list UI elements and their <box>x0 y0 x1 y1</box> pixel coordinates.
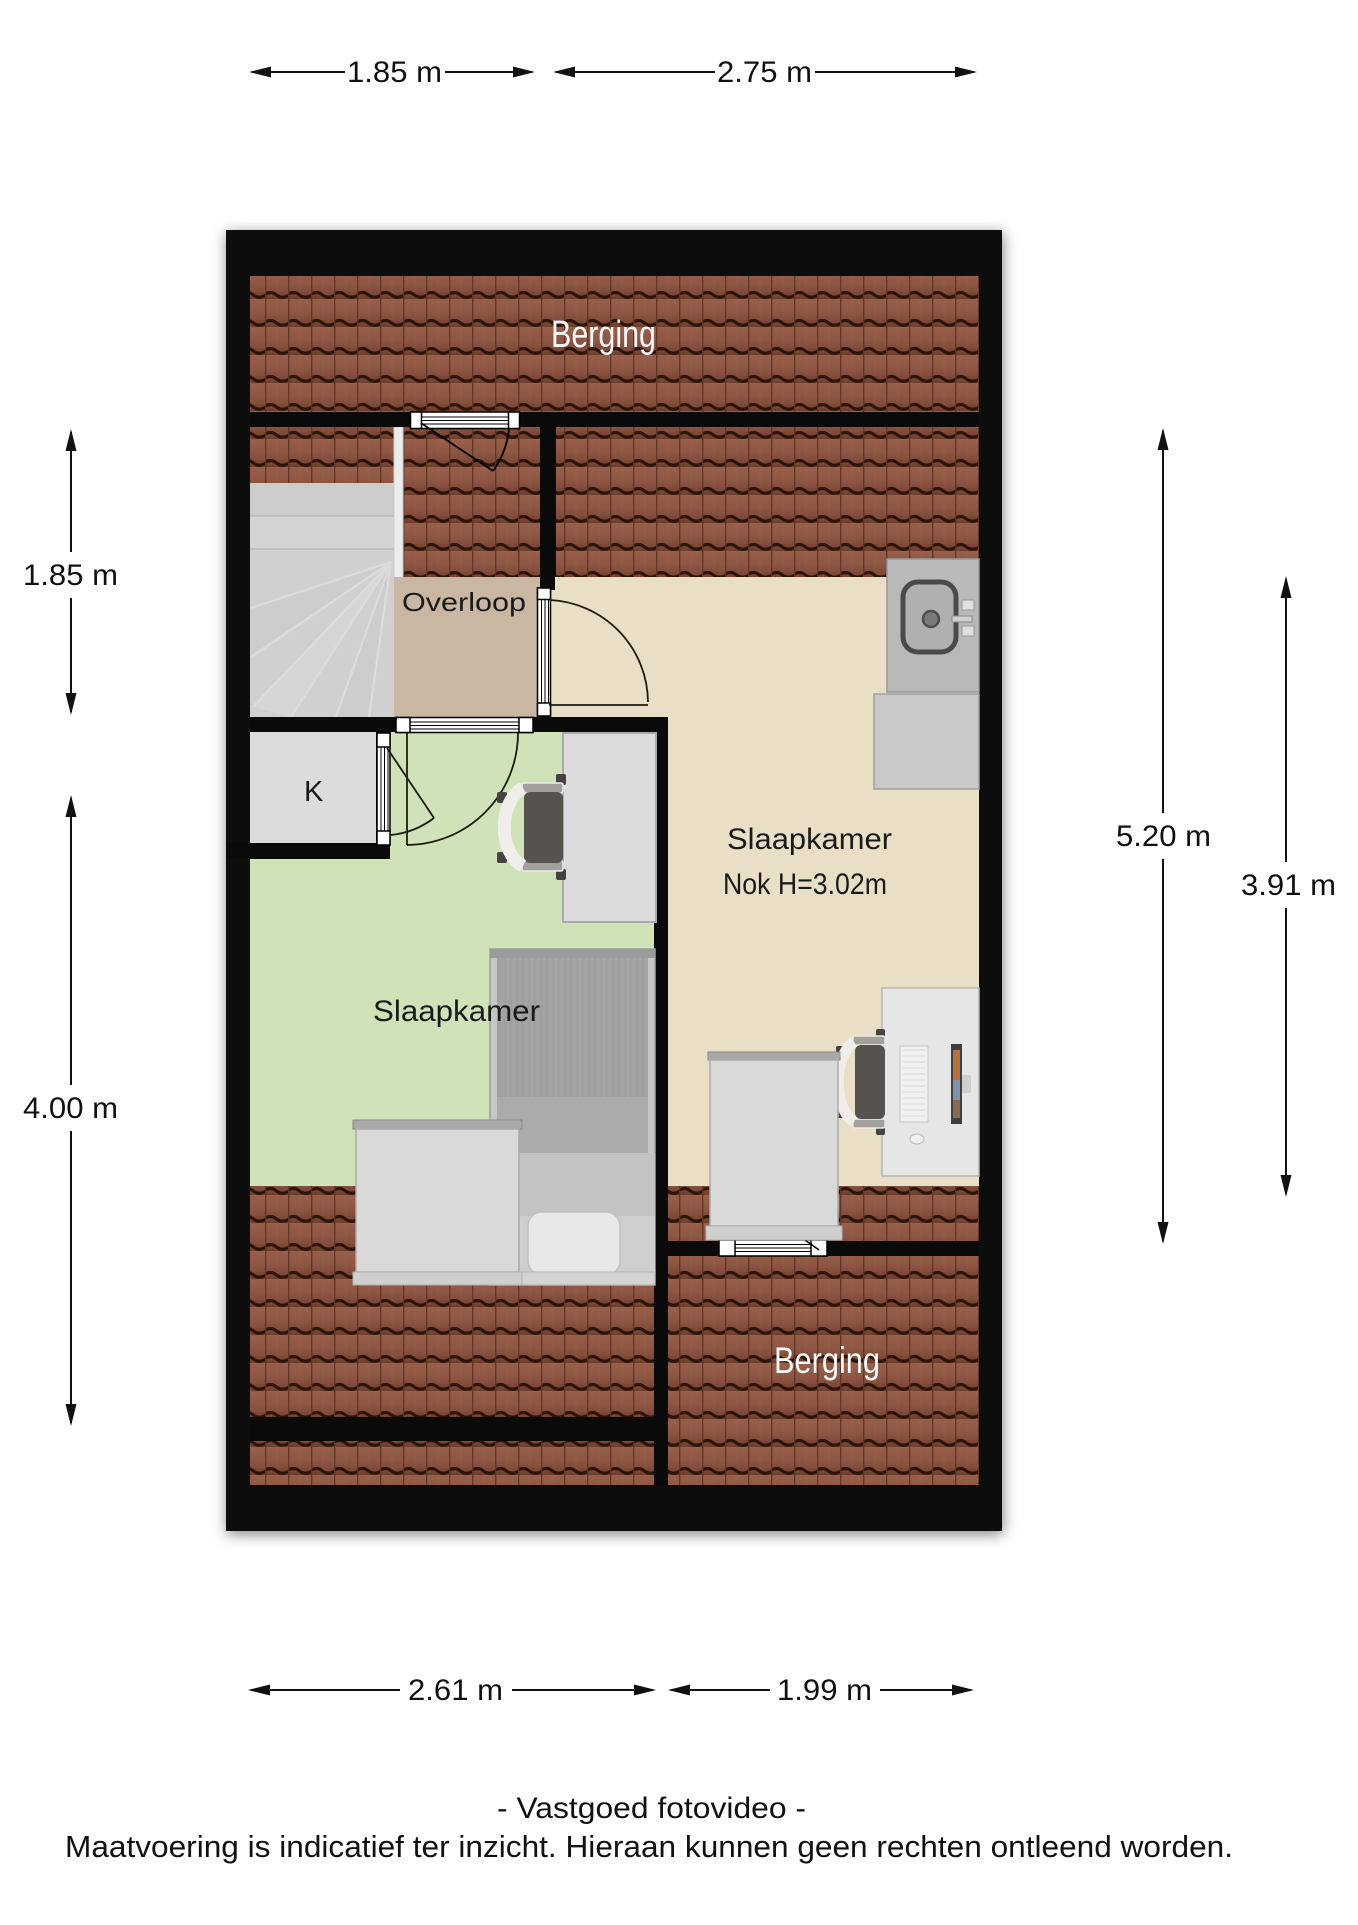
svg-text:Nok H=3.02m: Nok H=3.02m <box>723 868 887 901</box>
svg-text:3.91 m: 3.91 m <box>1241 869 1336 902</box>
svg-text:Berging: Berging <box>551 314 656 356</box>
svg-text:Slaapkamer: Slaapkamer <box>727 823 892 856</box>
svg-text:1.85 m: 1.85 m <box>347 56 442 89</box>
svg-text:Slaapkamer: Slaapkamer <box>373 995 540 1028</box>
svg-text:4.00 m: 4.00 m <box>23 1092 118 1125</box>
svg-text:5.20 m: 5.20 m <box>1116 820 1211 853</box>
svg-text:- Vastgoed fotovideo -: - Vastgoed fotovideo - <box>497 1792 806 1825</box>
svg-text:1.85 m: 1.85 m <box>23 559 118 592</box>
svg-text:Berging: Berging <box>774 1340 880 1381</box>
svg-text:K: K <box>304 776 324 808</box>
svg-text:2.61 m: 2.61 m <box>408 1674 503 1707</box>
svg-text:1.99 m: 1.99 m <box>777 1674 872 1707</box>
svg-text:Maatvoering is indicatief ter: Maatvoering is indicatief ter inzicht. H… <box>65 1829 1233 1864</box>
svg-text:Overloop: Overloop <box>402 587 526 617</box>
svg-text:2.75 m: 2.75 m <box>717 56 812 89</box>
